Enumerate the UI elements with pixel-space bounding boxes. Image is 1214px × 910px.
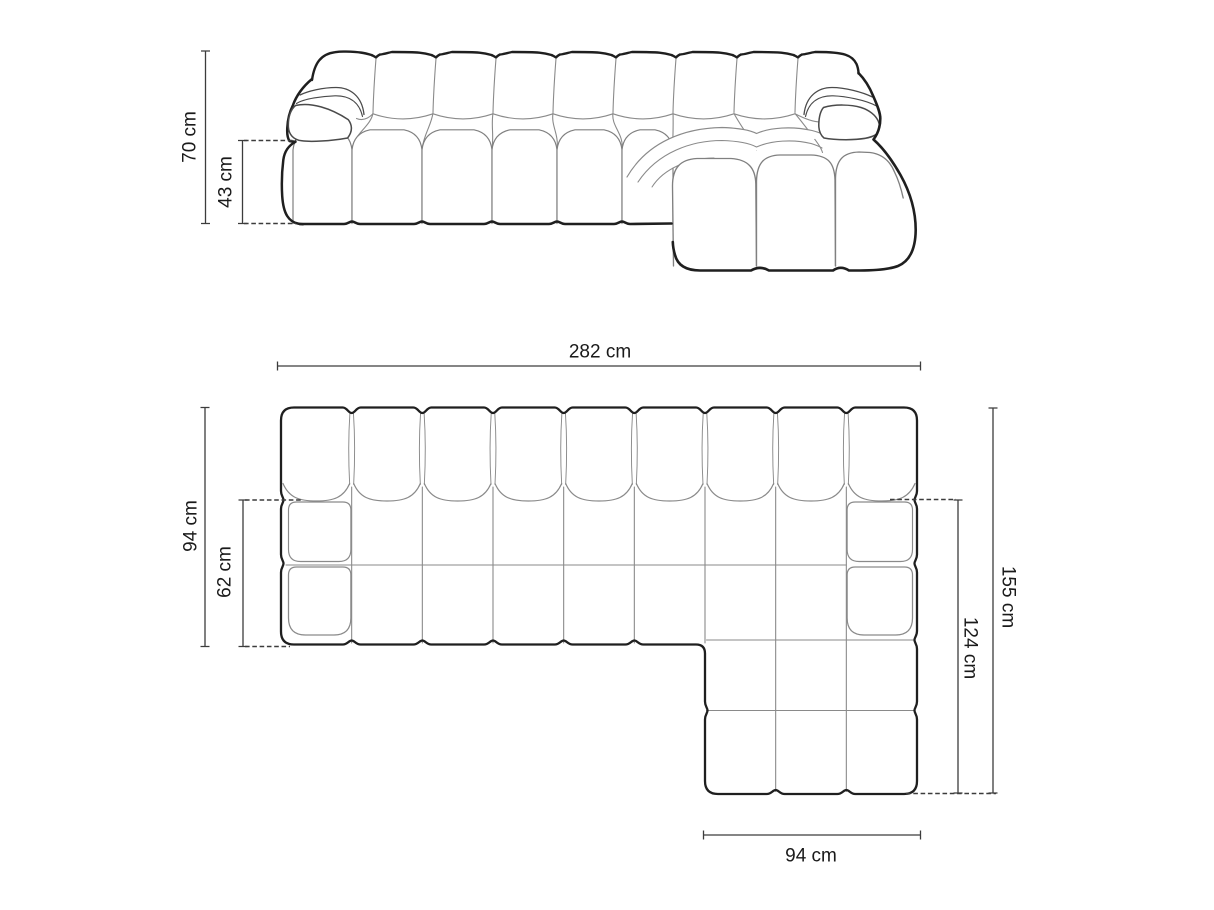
svg-text:155 cm: 155 cm	[998, 566, 1019, 628]
svg-text:282 cm: 282 cm	[569, 342, 631, 363]
svg-text:43 cm: 43 cm	[216, 156, 237, 208]
svg-text:62 cm: 62 cm	[215, 546, 236, 598]
svg-text:70 cm: 70 cm	[180, 111, 201, 163]
svg-text:124 cm: 124 cm	[960, 617, 981, 679]
svg-text:94 cm: 94 cm	[785, 846, 837, 867]
svg-text:94 cm: 94 cm	[181, 500, 202, 552]
